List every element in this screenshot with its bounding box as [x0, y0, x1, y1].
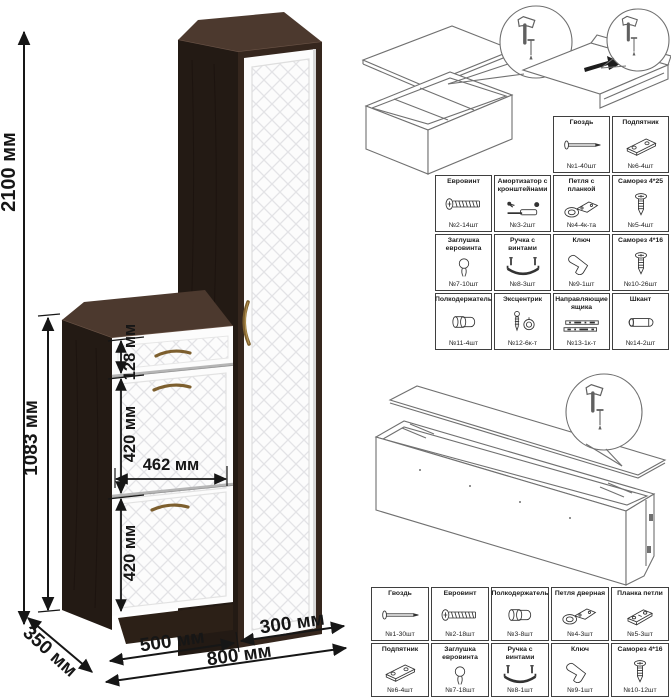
drawer-slides-icon: [555, 312, 608, 340]
footplate-icon: [373, 654, 427, 687]
part-cell: Полкодержатель№11-4шт: [435, 293, 492, 350]
gas-strut-icon: [496, 194, 549, 222]
part-qty: №9-1шт: [567, 687, 593, 694]
parts-table-bottom: Гвоздь№1-30штЕвровинт№2-18штПолкодержате…: [371, 587, 669, 697]
part-qty: №5-4шт: [628, 222, 654, 229]
part-qty: №2-14шт: [449, 222, 478, 229]
part-cell: Полкодержатель№3-8шт: [491, 587, 549, 641]
part-cell: Саморез 4*25№5-4шт: [612, 175, 669, 232]
part-qty: №4-4к-та: [567, 222, 596, 229]
part-cell: Подпятник№6-4шт: [612, 116, 669, 173]
part-qty: №7-18шт: [445, 687, 474, 694]
assembly-instruction-sheet: 2100 мм 1083 мм 128 мм 420 мм 462 мм 420…: [0, 0, 671, 700]
part-qty: №14-2шт: [626, 340, 655, 347]
part-cell: Заглушка евровинта№7-18шт: [431, 643, 489, 697]
cam-icon: [496, 304, 549, 340]
part-qty: №4-3шт: [567, 631, 593, 638]
part-name: Эксцентрик: [503, 296, 542, 304]
handle-icon: [496, 253, 549, 281]
part-cell: Евровинт№2-18шт: [431, 587, 489, 641]
part-qty: №2-18шт: [445, 631, 474, 638]
part-name: Заглушка евровинта: [437, 237, 490, 253]
part-name: Планка петли: [617, 590, 663, 598]
part-qty: №7-10шт: [449, 281, 478, 288]
part-name: Саморез 4*16: [618, 237, 663, 245]
part-cell: Ручка с винтами№8-1шт: [491, 643, 549, 697]
part-qty: №3-2шт: [510, 222, 536, 229]
part-name: Евровинт: [444, 590, 477, 598]
part-name: Подпятник: [622, 119, 658, 127]
part-name: Заглушка евровинта: [433, 646, 487, 662]
part-name: Саморез 4*16: [617, 646, 662, 654]
screw-icon: [614, 186, 667, 222]
part-name: Гвоздь: [570, 119, 594, 127]
part-cell: Саморез 4*16№10-12шт: [611, 643, 669, 697]
shelf-pin-icon: [493, 598, 547, 631]
part-cell: Петля дверная№4-3шт: [551, 587, 609, 641]
parts-table-main: Гвоздь№1-40штПодпятник№6-4штЕвровинт№2-1…: [435, 116, 669, 350]
part-name: Ручка с винтами: [493, 646, 547, 662]
part-qty: №9-1шт: [569, 281, 595, 288]
part-cell: Шкант№14-2шт: [612, 293, 669, 350]
part-name: Полкодержатель: [492, 590, 549, 598]
part-name: Петля с планкой: [555, 178, 608, 194]
part-name: Амортизатор с кронштейнами: [496, 178, 549, 194]
part-cell: Ручка с винтами№8-3шт: [494, 234, 551, 291]
shelf-pin-icon: [437, 304, 490, 340]
part-cell: Эксцентрик№12-6к-т: [494, 293, 551, 350]
part-cell: Направляющие ящика№13-1к-т: [553, 293, 610, 350]
part-name: Ключ: [571, 646, 589, 654]
part-cell: Гвоздь№1-40шт: [553, 116, 610, 173]
handle-icon: [493, 662, 547, 687]
cap-icon: [437, 253, 490, 281]
euroscrew-icon: [437, 186, 490, 222]
hinge-plate-icon: [613, 598, 667, 631]
part-cell: Саморез 4*16№10-26шт: [612, 234, 669, 291]
part-cell: Заглушка евровинта№7-10шт: [435, 234, 492, 291]
part-qty: №6-4шт: [628, 163, 654, 170]
nail-icon: [373, 598, 427, 631]
key-icon: [555, 245, 608, 281]
part-name: Гвоздь: [388, 590, 412, 598]
part-cell: Ключ№9-1шт: [551, 643, 609, 697]
part-qty: №8-1шт: [507, 687, 533, 694]
part-qty: №8-3шт: [510, 281, 536, 288]
part-name: Ручка с винтами: [496, 237, 549, 253]
part-qty: №1-40шт: [567, 163, 596, 170]
key-icon: [553, 654, 607, 687]
part-qty: №12-6к-т: [508, 340, 537, 347]
part-qty: №5-3шт: [627, 631, 653, 638]
part-name: Подпятник: [382, 646, 418, 654]
hinge-icon: [553, 598, 607, 631]
part-name: Евровинт: [447, 178, 480, 186]
part-cell: Подпятник№6-4шт: [371, 643, 429, 697]
part-cell: Амортизатор с кронштейнами№3-2шт: [494, 175, 551, 232]
part-qty: №10-12шт: [623, 687, 656, 694]
part-qty: №3-8шт: [507, 631, 533, 638]
screw-icon: [613, 654, 667, 687]
part-qty: №11-4шт: [449, 340, 478, 347]
euroscrew-icon: [433, 598, 487, 631]
part-name: Направляющие ящика: [555, 296, 608, 312]
cap-icon: [433, 662, 487, 687]
part-cell: Планка петли№5-3шт: [611, 587, 669, 641]
part-qty: №6-4шт: [387, 687, 413, 694]
part-qty: №1-30шт: [385, 631, 414, 638]
part-qty: №10-26шт: [624, 281, 657, 288]
screw-icon: [614, 245, 667, 281]
part-qty: №13-1к-т: [567, 340, 596, 347]
part-name: Саморез 4*25: [618, 178, 663, 186]
part-name: Шкант: [630, 296, 651, 304]
footplate-icon: [614, 127, 667, 163]
part-cell: Гвоздь№1-30шт: [371, 587, 429, 641]
part-name: Ключ: [573, 237, 591, 245]
part-cell: Ключ№9-1шт: [553, 234, 610, 291]
part-cell: Евровинт№2-14шт: [435, 175, 492, 232]
dowel-icon: [614, 304, 667, 340]
part-name: Полкодержатель: [435, 296, 492, 304]
part-cell: Петля с планкой№4-4к-та: [553, 175, 610, 232]
part-name: Петля дверная: [555, 590, 605, 598]
nail-icon: [555, 127, 608, 163]
diagram-wardrobe-back-panel: [376, 374, 665, 585]
hinge-icon: [555, 194, 608, 222]
